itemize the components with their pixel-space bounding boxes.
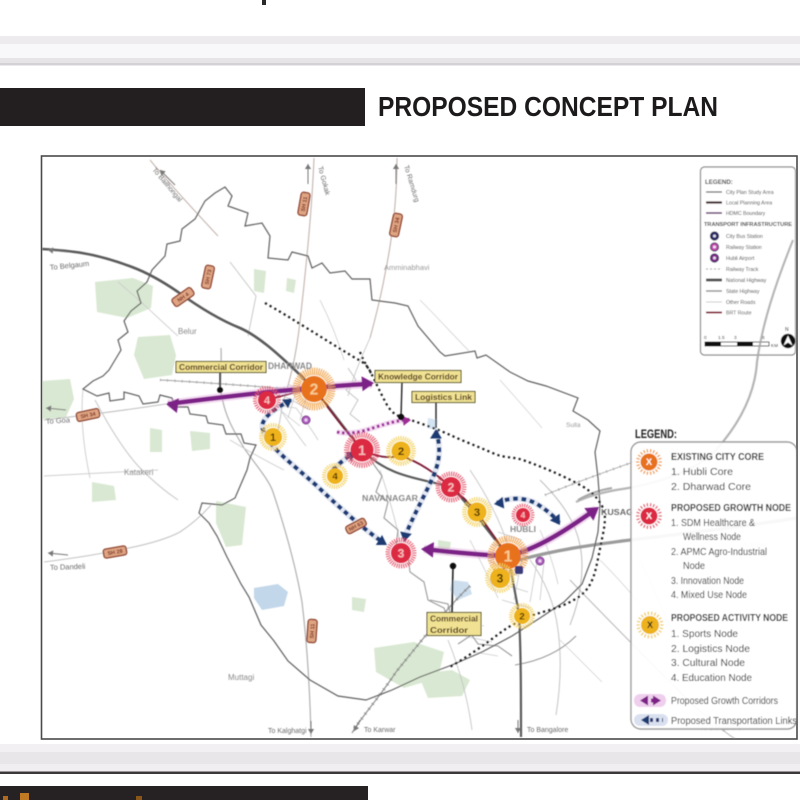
svg-text:2. Logistics Node: 2. Logistics Node <box>671 644 750 655</box>
svg-text:HDMC Boundary: HDMC Boundary <box>726 211 766 217</box>
svg-text:2. Dharwad Core: 2. Dharwad Core <box>671 482 751 493</box>
svg-text:3. Innovation Node: 3. Innovation Node <box>671 576 744 587</box>
svg-text:Railway Track: Railway Track <box>726 267 759 273</box>
svg-text:2. APMC Agro-Industrial: 2. APMC Agro-Industrial <box>671 547 767 558</box>
svg-text:Amminabhavi: Amminabhavi <box>384 263 430 272</box>
svg-text:PROPOSED CONCEPT PLAN: PROPOSED CONCEPT PLAN <box>378 91 718 122</box>
svg-text:Railway Station: Railway Station <box>726 245 762 251</box>
svg-text:To Kalghatgi: To Kalghatgi <box>268 728 307 735</box>
svg-text:1.5: 1.5 <box>718 335 725 341</box>
svg-text:NAVANAGAR: NAVANAGAR <box>362 494 418 503</box>
svg-text:1. Hubli Core: 1. Hubli Core <box>671 467 733 478</box>
svg-text:3: 3 <box>497 571 504 585</box>
svg-text:Commercial Corridor: Commercial Corridor <box>179 362 264 372</box>
svg-text:4: 4 <box>521 510 526 520</box>
svg-text:To Goa: To Goa <box>46 415 72 426</box>
svg-text:LEGEND:: LEGEND: <box>705 179 733 186</box>
svg-text:Sulla: Sulla <box>566 422 581 429</box>
svg-text:SH 11: SH 11 <box>309 623 316 638</box>
svg-text:1. Sports Node: 1. Sports Node <box>671 629 738 640</box>
svg-text:4. Education Node: 4. Education Node <box>671 673 752 684</box>
svg-text:X: X <box>646 457 652 467</box>
svg-text:EXISTING CITY CORE: EXISTING CITY CORE <box>671 451 764 463</box>
svg-text:City Plan Study Area: City Plan Study Area <box>726 190 774 196</box>
svg-text:To Karwar: To Karwar <box>364 727 396 734</box>
svg-text:3: 3 <box>398 546 405 560</box>
svg-text:2: 2 <box>519 611 524 622</box>
svg-text:X: X <box>646 511 652 521</box>
svg-text:Proposed Growth Corridors: Proposed Growth Corridors <box>671 696 778 707</box>
svg-text:PROPOSED GROWTH NODE: PROPOSED GROWTH NODE <box>671 502 791 514</box>
svg-text:DHARWAD: DHARWAD <box>268 361 312 371</box>
svg-text:1. SDM Healthcare &: 1. SDM Healthcare & <box>671 518 755 529</box>
svg-text:0: 0 <box>704 335 707 341</box>
svg-text:National Highway: National Highway <box>726 278 767 284</box>
svg-text:3. Cultural Node: 3. Cultural Node <box>671 658 745 669</box>
svg-text:N: N <box>785 327 789 333</box>
svg-text:3: 3 <box>474 507 480 519</box>
svg-text:City Bus Station: City Bus Station <box>726 234 763 240</box>
svg-text:To Bangalore: To Bangalore <box>527 727 568 734</box>
svg-text:1: 1 <box>504 549 513 566</box>
svg-text:Corridor: Corridor <box>430 625 469 635</box>
svg-text:Logistics Link: Logistics Link <box>415 392 472 402</box>
svg-text:3: 3 <box>734 335 737 341</box>
svg-text:Other Roads: Other Roads <box>726 300 756 306</box>
svg-text:2: 2 <box>448 480 455 494</box>
svg-text:4: 4 <box>264 395 270 407</box>
svg-text:Belur: Belur <box>178 327 197 336</box>
svg-text:KUSAG: KUSAG <box>601 507 633 517</box>
svg-text:4: 4 <box>332 471 338 482</box>
svg-text:KM: KM <box>771 343 778 348</box>
svg-text:Local Planning Area: Local Planning Area <box>726 201 772 207</box>
svg-text:LEGEND:: LEGEND: <box>635 429 677 441</box>
svg-text:X: X <box>647 620 653 630</box>
svg-text:TRANSPORT INFRASTRUCTURE: TRANSPORT INFRASTRUCTURE <box>704 222 792 228</box>
svg-text:2: 2 <box>310 382 319 399</box>
svg-text:1: 1 <box>270 432 276 444</box>
svg-text:HUBLI: HUBLI <box>510 525 536 534</box>
svg-text:Node: Node <box>683 561 705 572</box>
svg-text:2: 2 <box>398 446 404 458</box>
svg-text:4. Mixed Use Node: 4. Mixed Use Node <box>671 590 747 601</box>
svg-text:State Highway: State Highway <box>726 289 760 295</box>
svg-text:Katakeri: Katakeri <box>124 468 154 477</box>
svg-text:BRT Route: BRT Route <box>726 311 752 317</box>
svg-text:Commercial: Commercial <box>430 613 478 623</box>
svg-text:Proposed Transportation Links: Proposed Transportation Links <box>671 716 797 727</box>
svg-text:PROPOSED ACTIVITY NODE: PROPOSED ACTIVITY NODE <box>671 612 788 624</box>
svg-text:Knowledge Corridor: Knowledge Corridor <box>378 372 459 382</box>
svg-text:Muttagi: Muttagi <box>228 673 254 682</box>
svg-text:1: 1 <box>358 443 366 458</box>
svg-text:Hubli Airport: Hubli Airport <box>726 256 755 262</box>
svg-text:To Dandeli: To Dandeli <box>50 562 86 572</box>
svg-text:Wellness Node: Wellness Node <box>683 532 741 543</box>
